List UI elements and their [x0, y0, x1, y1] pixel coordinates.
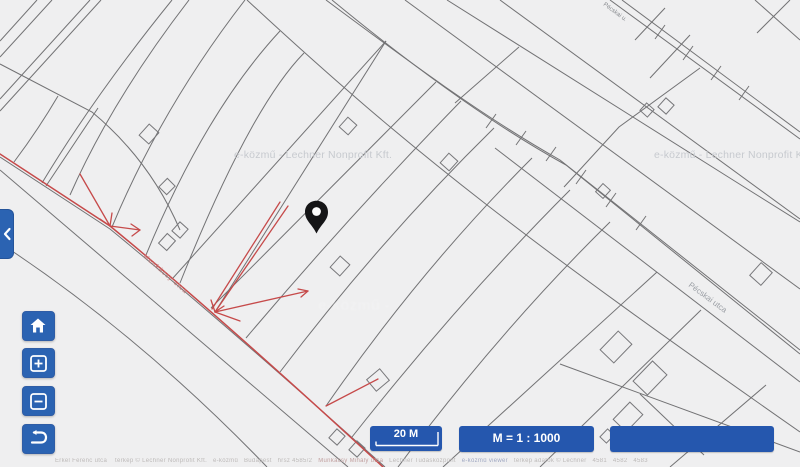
svg-text:Pécskai u.: Pécskai u. — [602, 2, 628, 23]
svg-text:Munkácsy utca: Munkácsy utca — [142, 253, 189, 295]
svg-text:Pécskai utca: Pécskai utca — [687, 280, 729, 315]
